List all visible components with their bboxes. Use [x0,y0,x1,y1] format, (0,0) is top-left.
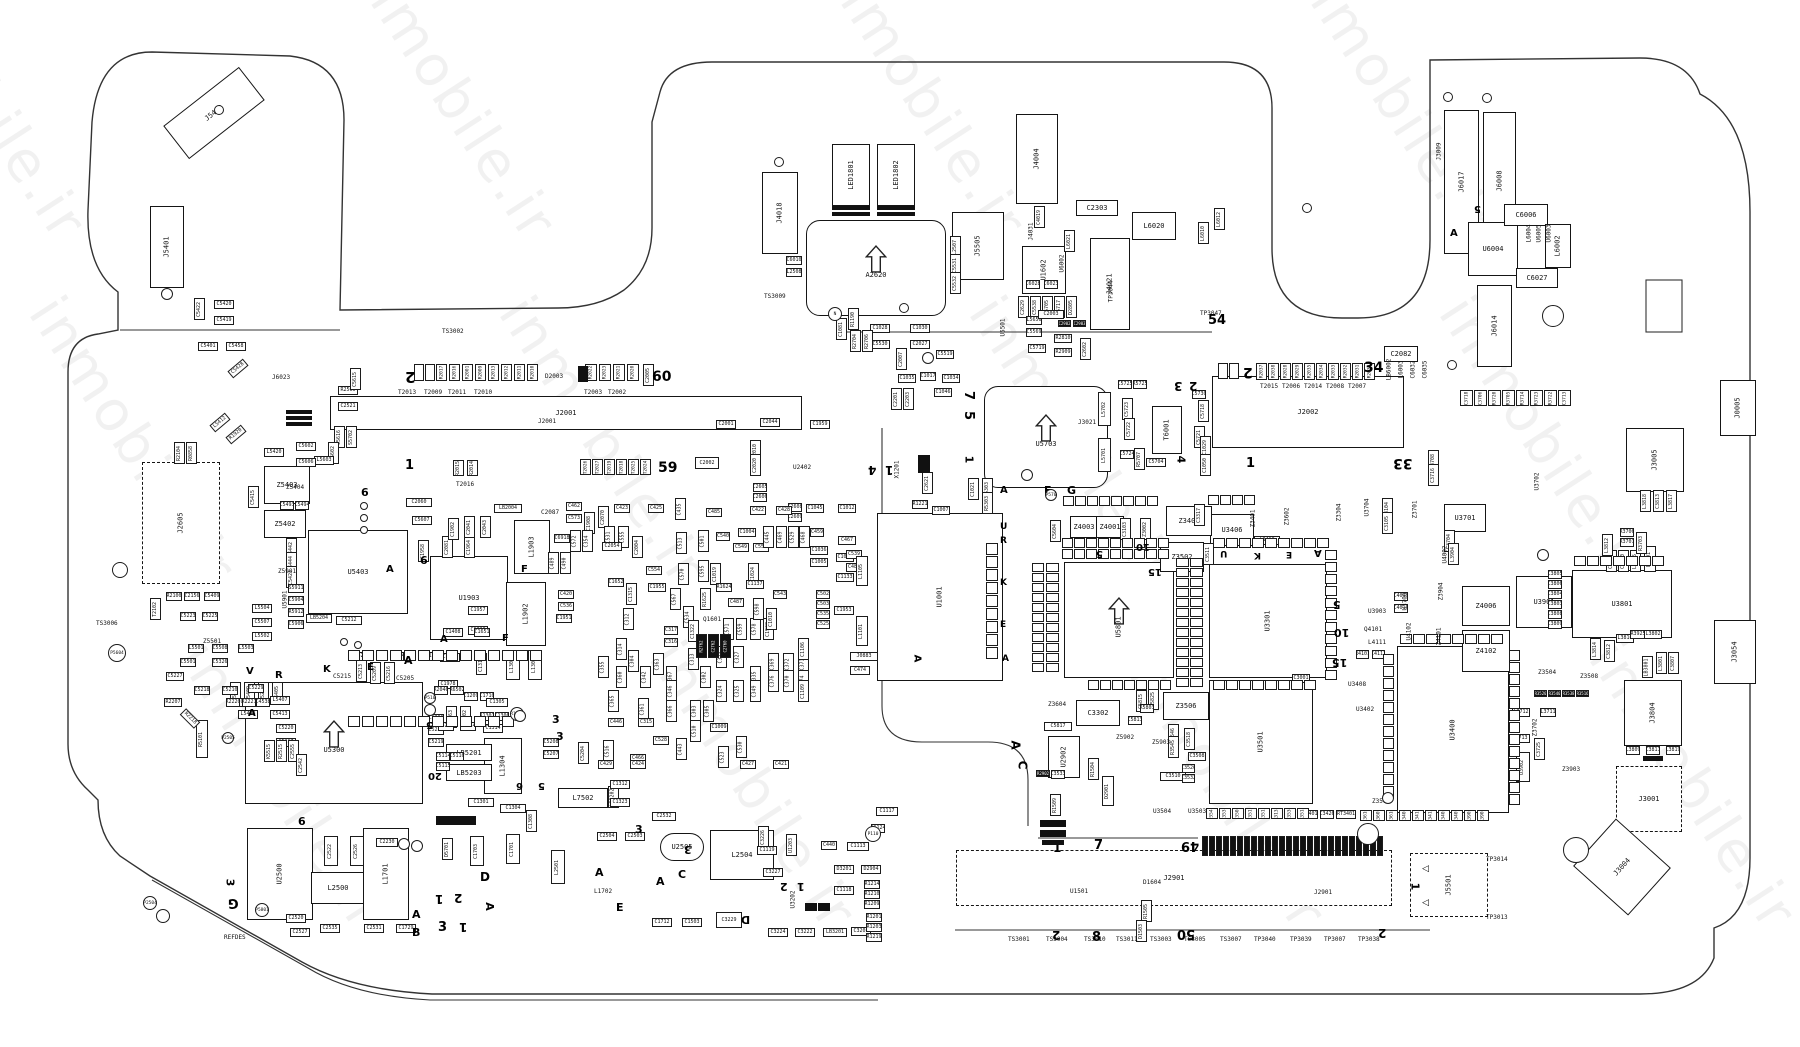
component-C1021: C1021 [968,478,979,500]
board-hole [1537,549,1549,561]
component-label: C1312 [612,782,627,787]
ic-label: C6006 [1515,211,1536,219]
component-C2542: C2542 [296,754,307,776]
component-C2522: C2522 [324,836,338,866]
component-R2220: R2220 [226,698,240,707]
component-label: L3802 [1645,632,1660,637]
component-label: C503 [817,602,829,607]
component-label: C1019 [713,566,718,581]
strip-cell [1046,593,1059,602]
ic-C6006: C6006 [1504,204,1548,226]
strip-cell [1112,680,1123,690]
ref-glyph-4: 4 [868,463,876,477]
component-label: R1209 [864,902,879,907]
ic-label: J0005 [1734,397,1742,418]
strip-cell [1252,538,1264,548]
strip-cell-label: R2023 [603,366,608,380]
strip-cell [1244,836,1250,856]
ref-glyph-5: 5 [426,719,433,730]
strip-cell [1509,698,1520,709]
component-label: C1030 [912,326,927,331]
strip-cell-label: R3607 [1377,810,1382,821]
strip-cell: P3541 [1206,808,1218,819]
component-label: C424 [632,762,644,767]
component-label: L3817 [1669,493,1674,508]
component-C474: C474 [850,666,870,675]
component-C5458: C5458 [226,342,246,351]
component-label: C5722 [1127,421,1132,436]
strip-cell [1509,782,1520,793]
strip-cell-label: R3904 [1481,810,1486,821]
component-C1959: C1959 [810,420,830,429]
component-label: R3701 [1620,540,1634,545]
component-label: L5603 [316,458,331,463]
strip-cell [446,650,458,661]
strip-cell [1325,610,1337,620]
component-C5725: C5725 [1118,380,1132,389]
ic-label: U3801 [1611,600,1632,608]
annotation-L1702: L1702 [594,888,612,895]
component-label: U3902 [1521,759,1526,774]
board-hole [1357,823,1379,845]
component-L1101: L1101 [856,616,868,646]
component-label: C2003 [1043,312,1058,317]
strip-cell: R2011 [514,364,525,381]
annotation-U4102: U4102 [1406,622,1413,640]
strip-cell [1239,680,1251,690]
component-label: R2810 [1055,336,1070,341]
strip-cell-label: C3404 [1403,810,1408,821]
component-label: C567 [673,593,678,605]
ic-Z4006: Z4006 [1462,586,1510,626]
component-label: C2542 [299,757,304,772]
component-label: C2532 [656,814,671,819]
component-label: C2527 [292,930,307,935]
strip-cell [1509,722,1520,733]
component-label: L5501 [188,646,203,651]
component-C543: C543 [773,590,787,599]
component-C5225: C5225 [202,612,218,621]
annotation-U3706: U3706 [1402,592,1409,610]
strip-cell [1176,588,1189,597]
testpoint-P510: P510 [424,692,436,704]
ic-label: J5505 [974,235,982,256]
component-label: LB5204 [310,616,328,621]
component-C6918: C6918 [554,534,570,543]
component-C3803: C3803 [1548,600,1562,609]
strip-cell: R3607 [1373,810,1385,821]
strip-cell [1452,634,1464,644]
component-C314: C314 [616,638,627,660]
strip-cell [488,650,500,661]
component-label: C5401 [200,344,215,349]
solid-bar [1042,840,1064,845]
strip-cell [404,716,416,727]
annotation-Z4101: Z4101 [1436,627,1443,645]
component-label: C528 [655,738,667,743]
board-hole [360,514,368,522]
strip-cell-label: T2018 [619,460,624,474]
component-label: C2004 [635,539,640,554]
strip-cell-label: R2022 [589,366,594,380]
component-C316: C316 [664,638,678,647]
strip-cell [376,650,388,661]
component-label: C1957 [470,608,485,613]
component-C5722: C5722 [1124,418,1135,440]
strip-cell [460,716,472,727]
strip-cell [1300,836,1306,856]
component-C5401: C5401 [198,342,218,351]
strip-cell: R2009 [475,364,486,381]
component-C421: C421 [773,760,789,769]
component-label: C425 [650,506,662,511]
component-label: C2005 [646,367,651,382]
strip-cell: R2021 [613,364,625,381]
strip-cell-label: R2029 [1295,365,1300,379]
annotation-U3504: U3504 [1153,808,1171,815]
component-label: C573 [568,516,580,521]
ic-LB5203: LB5203 [446,764,492,781]
strip-cell [1265,680,1277,690]
strip-cell [1349,836,1355,856]
strip-cell [1136,680,1147,690]
ic-J3005: J3005 [1626,428,1684,492]
component-R5303: R5303 [982,492,993,514]
component-label: C2203 [906,391,911,406]
component-label: C363 [656,658,661,670]
ref-glyph-◁: ◁ [1422,864,1429,874]
component-label: C3806 [1548,582,1562,587]
ic-label: L1701 [382,863,390,884]
strip-cell [1190,588,1203,597]
component-label: C354 [585,535,590,547]
annotation-TS3010: TS3010 [1084,936,1106,943]
ref-glyph-3: 3 [223,879,236,887]
annotation-U3903: U3903 [1368,608,1386,615]
strip-cell: R3905 [1464,810,1476,821]
annotation-TP3047: TP3047 [1200,310,1222,317]
component-label: C5219 [428,740,443,745]
component-R1209: R1209 [864,900,880,909]
component-label: C366 [669,705,674,717]
strip-cell: R2020 [627,364,639,381]
strip-cell [362,650,374,661]
ic-C3302: C3302 [1076,700,1120,726]
component-label: R1203 [866,925,881,930]
component-C5419: C5419 [214,316,234,325]
component-label: C543 [774,592,786,597]
component-L3817: L3817 [1666,490,1677,512]
component-C5204: C5204 [578,742,589,764]
component-label: C2156 [184,594,199,599]
strip-cell [1237,836,1243,856]
component-C573: C573 [566,514,582,523]
component-label: C5223 [180,614,195,619]
ic-A2620: A2620 [806,220,946,316]
component-label: C5813 [1128,718,1142,723]
component-C1315: C1315 [626,583,637,605]
strip-cell [1509,794,1520,805]
ic-label: J2001 [555,409,576,417]
component-label: C3532 [1182,776,1195,781]
strip-cell [390,716,402,727]
solid-bar [286,422,312,426]
strip-cell [1190,618,1203,627]
component-label: C422 [752,508,764,513]
ref-glyph-5: 5 [961,411,976,420]
strip-cell [1258,836,1264,856]
component-R1624: R1624 [716,583,732,592]
ic-label: C6027 [1526,274,1547,282]
component-label: D2904 [863,867,878,872]
ref-glyph-D: D [741,913,750,926]
strip-cell [1190,658,1203,667]
component-C468: C468 [799,526,810,548]
strip-cell [1176,578,1189,587]
ic-label: Z4001 [1099,523,1120,531]
strip-cell-label: C3511 [1249,808,1254,819]
component-C5530: C5530 [870,340,890,349]
ref-glyph-2: 2 [1189,379,1197,393]
annotation-TP3007: TP3007 [1324,936,1346,943]
component-R3540: R3540 [1548,690,1561,697]
component-C2044: C2044 [760,418,780,427]
component-C1964: C1964 [464,536,475,558]
ic-L1903: L1903 [514,520,550,574]
component-R3703: R3703 [1636,532,1647,554]
component-C536: C536 [558,602,574,611]
component-label: R5101 [200,731,205,746]
ic-label: J3004 [1612,856,1632,877]
component-label: C5204 [581,745,586,760]
component-C1081: C1081 [836,318,847,340]
component-C5493: C5493 [280,501,294,510]
component-L6012: L6012 [1214,208,1225,230]
component-label: R2902 [1037,771,1049,776]
component-L3711: L3711 [1540,708,1556,717]
ic-label: L2500 [327,884,348,892]
component-label: C4019 [1037,209,1042,224]
component-label: C1951 [556,616,571,621]
component-L3802: L3802 [1644,630,1662,639]
annotation-Z3903: Z3903 [1562,766,1580,773]
component-label: C2526 [355,843,360,858]
strip-cell: C3413 [1425,810,1437,821]
component-C428: C428 [776,506,792,515]
strip-cell-label: R2032 [1343,365,1348,379]
strip-cell [1244,495,1255,505]
ic-J2901: J2901 [956,850,1392,906]
component-D2805: D2805 [1066,296,1077,318]
component-C303: C303 [690,700,701,722]
strip-cell-label: R2034 [1319,365,1324,379]
component-label: C3809 [1548,622,1562,627]
component-C2605: C2605 [753,483,767,492]
ref-glyph-K: K [1254,550,1261,560]
component-label: C489 [551,557,556,569]
strip-cell-label: R2001 [465,366,470,380]
component-label: C2520 [288,916,303,921]
component-C1304: C1304 [500,804,526,813]
component-C5212: C5212 [336,616,362,625]
strip-cell: T2025 [628,459,639,475]
ic-label: J3054 [1731,641,1739,662]
strip-cell [1251,836,1257,856]
component-label: R3540 [1548,691,1560,696]
ref-glyph-2: 2 [405,368,415,386]
strip-cell [1307,836,1313,856]
component-C1004: C1004 [738,528,756,537]
ref-glyph-F: F [521,564,528,575]
component-label: C2230 [379,840,394,845]
component-C5409: C5409 [204,592,220,601]
board-hole [1302,203,1312,213]
component-label: C2902 [1058,321,1070,326]
component-R2909: R2909 [1054,348,1072,357]
component-C5420: C5420 [214,300,234,309]
strip-cell [1124,680,1135,690]
component-label: U1203 [789,837,794,852]
strip-cell: R2010 [527,364,538,381]
component-C1951: C1951 [556,614,572,623]
strip-cell [488,716,500,727]
component-label: C2606 [753,495,767,500]
strip-cell [1279,836,1285,856]
board-hole [1482,93,1492,103]
ic-LED1802: LED1802 [877,144,915,206]
annotation-U6003: U6003 [1546,224,1553,242]
board-hole [1563,837,1589,863]
component-C1953: C1953 [834,606,854,615]
component-label: C1035 [899,376,914,381]
strip-cell: R2001 [462,364,473,381]
annotation-TS3009: TS3009 [764,293,786,300]
annotation-C6032: C6032 [1410,360,1417,378]
strip-cell [1509,770,1520,781]
annotation-U6002: U6002 [1059,254,1066,272]
component-label: C2621 [925,475,930,490]
component-label: R5707 [1137,451,1142,466]
component-label: C5420 [216,302,231,307]
component-label: R2221 [242,700,256,705]
component-label: Z3002 [1143,521,1148,536]
component-C5219: C5219 [428,738,444,747]
component-R5912: R5912 [288,608,304,617]
ref-glyph-E: E [1000,620,1006,630]
annotation-TS3002: TS3002 [442,328,464,335]
component-R2014: R2014 [467,460,478,476]
component-label: C3526 [1182,766,1195,771]
strip-cell [418,650,430,661]
component-C2531: C2531 [364,924,384,933]
strip-cell [1252,680,1264,690]
component-label: D2901 [1106,783,1111,798]
strip-cell [1063,496,1074,506]
board-hole [340,638,348,646]
ic-label: U1903 [458,594,479,602]
strip-cell [986,647,998,659]
strip-cell [1325,586,1337,596]
component-C5904: C5904 [288,596,304,605]
component-label: L5420 [266,450,281,455]
component-label: C595 [701,565,706,577]
component-label: C5530 [872,342,887,347]
component-label: C523 [721,751,726,763]
component-label: C2521 [340,404,355,409]
ref-glyph-6: 6 [516,780,523,791]
component-label: C530 [739,741,744,753]
strip-cell-label: T2019 [607,460,612,474]
component-label: C1021 [971,481,976,496]
strip-cell [1509,758,1520,769]
strip-cell [1046,643,1059,652]
component-label: C312 [626,613,631,625]
ref-glyph-R: R [275,670,283,681]
component-C1652: C1652 [608,578,624,587]
component-R1625: R1625 [700,588,711,610]
component-C2535: C2535 [320,924,340,933]
component-label: R3516 [1576,691,1588,696]
strip-cell [1325,574,1337,584]
ref-glyph-A: A [1002,654,1009,664]
component-label: C303 [693,705,698,717]
component-R1504: R1504 [1088,758,1099,780]
strip-cell [1158,538,1169,548]
annotation-U3202: U3202 [790,890,797,908]
ic-label: L7502 [572,794,593,802]
component-label: C1109 [801,683,806,698]
annotation-TS3003: TS3003 [1150,936,1172,943]
component-label: C327 [736,651,741,663]
strip-cell [1122,538,1133,548]
component-label: C1323 [612,800,627,805]
strip-cell [1314,836,1320,856]
component-C513: C513 [676,532,687,554]
testpoint-P5801: P5801 [255,903,269,917]
strip-cell [1291,538,1303,548]
component-L2501: L2501 [551,850,565,884]
component-label: C513 [679,537,684,549]
annotation-J6023: J6023 [272,374,290,381]
component-label: C1028 [872,326,887,331]
component-C1117: C1117 [876,807,898,816]
component-label: C1701 [511,841,516,856]
board-hole [360,526,368,534]
component-C5220: C5220 [276,724,296,733]
strip-cell [1413,634,1425,644]
annotation-Z3401: Z3401 [1250,509,1257,527]
component-label: C346 [669,685,674,697]
component-label: R1201 [866,915,881,920]
ref-glyph-A: A [595,866,604,879]
component-label: C549 [735,545,747,550]
component-R3520: R3520 [1534,690,1547,697]
component-label: C3805 [1548,572,1562,577]
component-C423: C423 [614,504,630,513]
board-hole [398,838,410,850]
annotation-C2087: C2087 [541,509,559,516]
annotation-Z3604: Z3604 [1048,701,1066,708]
component-label: C420 [560,592,572,597]
component-label: C5227 [167,674,182,679]
ic-U1001: U1001 [877,513,1003,681]
strip-cell [425,364,435,381]
component-label: R5912 [288,610,303,615]
component-label: C1050 [1203,457,1208,472]
strip-cell [1062,549,1073,559]
component-label: C1703 [475,843,480,858]
component-label: C5904 [288,598,303,603]
